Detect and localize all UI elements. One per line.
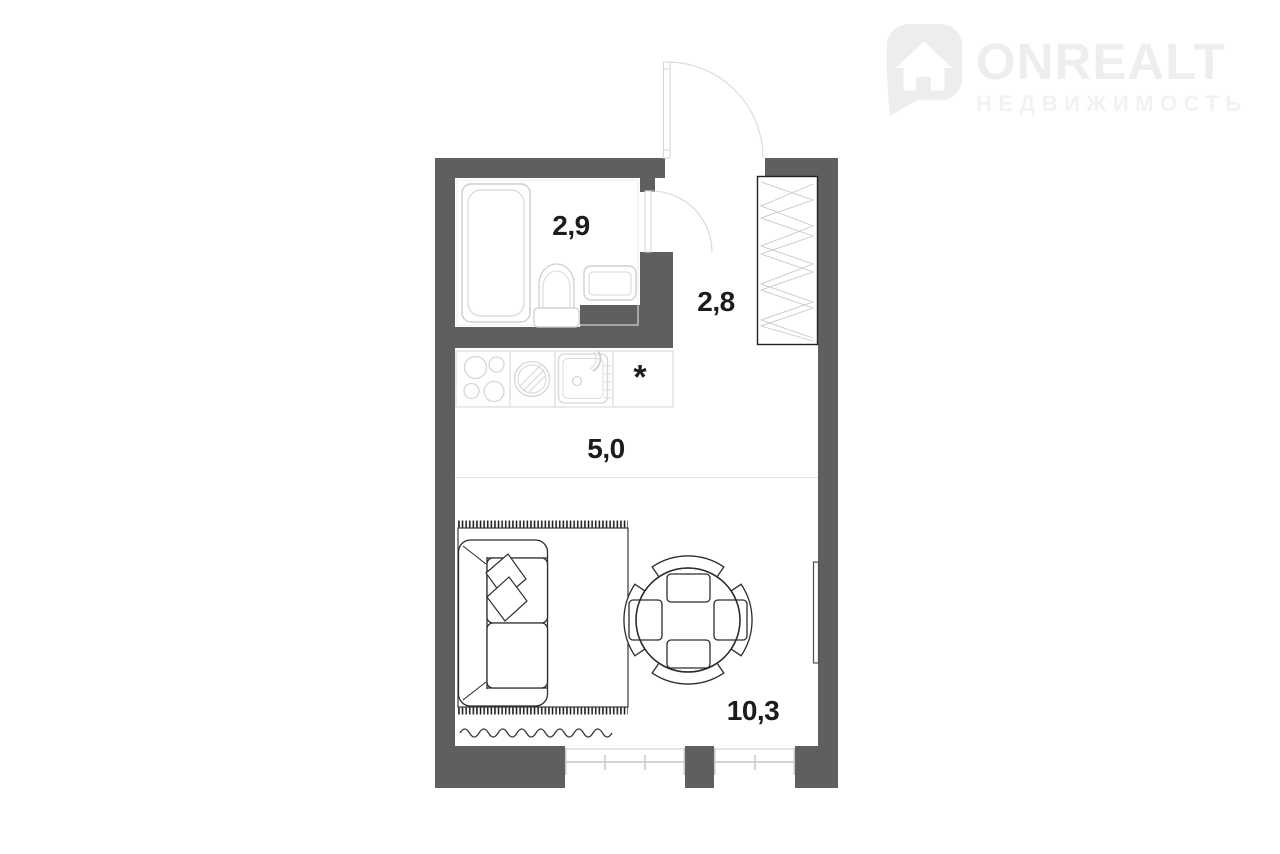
kitchen-area-label: 5,0 — [587, 433, 624, 465]
hallway-area-label: 2,8 — [697, 286, 734, 318]
bathroom-area-label: 2,9 — [552, 210, 589, 242]
kitchen-sink — [559, 351, 613, 403]
wardrobe — [758, 177, 818, 345]
living-room-area-label: 10,3 — [727, 695, 780, 727]
kitchen-note-asterisk: * — [633, 359, 646, 398]
chairs — [624, 556, 752, 684]
entrance-door — [664, 62, 764, 158]
wavy-decor-line — [460, 729, 612, 737]
floor-plan-drawing — [0, 0, 1280, 854]
bathroom-door — [645, 191, 712, 252]
bathroom-sink — [584, 266, 636, 300]
sofa — [459, 540, 548, 706]
floor-plan-page: ONREALT НЕДВИЖИМОСТЬ — [0, 0, 1280, 854]
radiator — [814, 562, 819, 663]
windows — [565, 748, 795, 775]
toilet — [534, 264, 579, 327]
bathtub — [462, 184, 530, 322]
